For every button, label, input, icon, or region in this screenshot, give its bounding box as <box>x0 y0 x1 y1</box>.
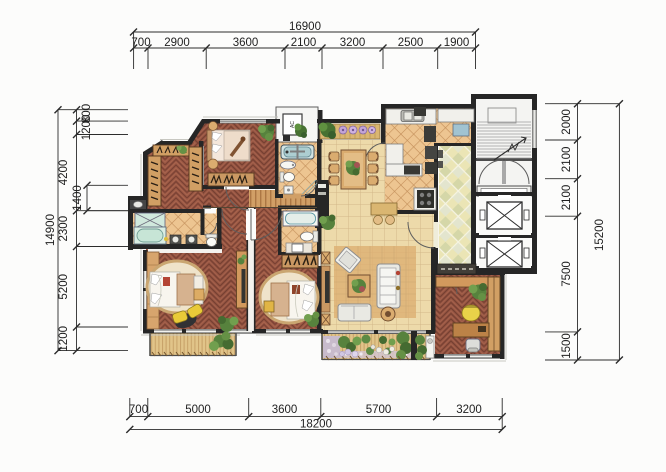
svg-text:1400: 1400 <box>72 185 84 211</box>
svg-text:2000: 2000 <box>561 109 573 135</box>
svg-text:5700: 5700 <box>366 404 392 416</box>
svg-text:3200: 3200 <box>340 37 366 49</box>
svg-text:3200: 3200 <box>456 404 482 416</box>
svg-text:5200: 5200 <box>58 274 70 300</box>
svg-text:2900: 2900 <box>164 37 190 49</box>
svg-text:2100: 2100 <box>561 147 573 173</box>
svg-text:1500: 1500 <box>561 333 573 359</box>
svg-text:18200: 18200 <box>300 419 332 431</box>
svg-text:1200: 1200 <box>81 115 93 141</box>
svg-text:7500: 7500 <box>561 261 573 287</box>
svg-text:1200: 1200 <box>58 326 70 352</box>
svg-text:2100: 2100 <box>561 185 573 211</box>
svg-text:5000: 5000 <box>185 404 211 416</box>
svg-text:15200: 15200 <box>594 219 606 251</box>
svg-text:3600: 3600 <box>233 37 259 49</box>
svg-text:1900: 1900 <box>444 37 470 49</box>
svg-text:14900: 14900 <box>45 214 57 246</box>
svg-text:2300: 2300 <box>58 216 70 242</box>
svg-text:4200: 4200 <box>58 160 70 186</box>
svg-text:700: 700 <box>131 37 150 49</box>
svg-text:16900: 16900 <box>289 21 321 33</box>
svg-text:3600: 3600 <box>272 404 298 416</box>
svg-text:700: 700 <box>129 404 148 416</box>
svg-text:2100: 2100 <box>291 37 317 49</box>
svg-text:2500: 2500 <box>398 37 424 49</box>
